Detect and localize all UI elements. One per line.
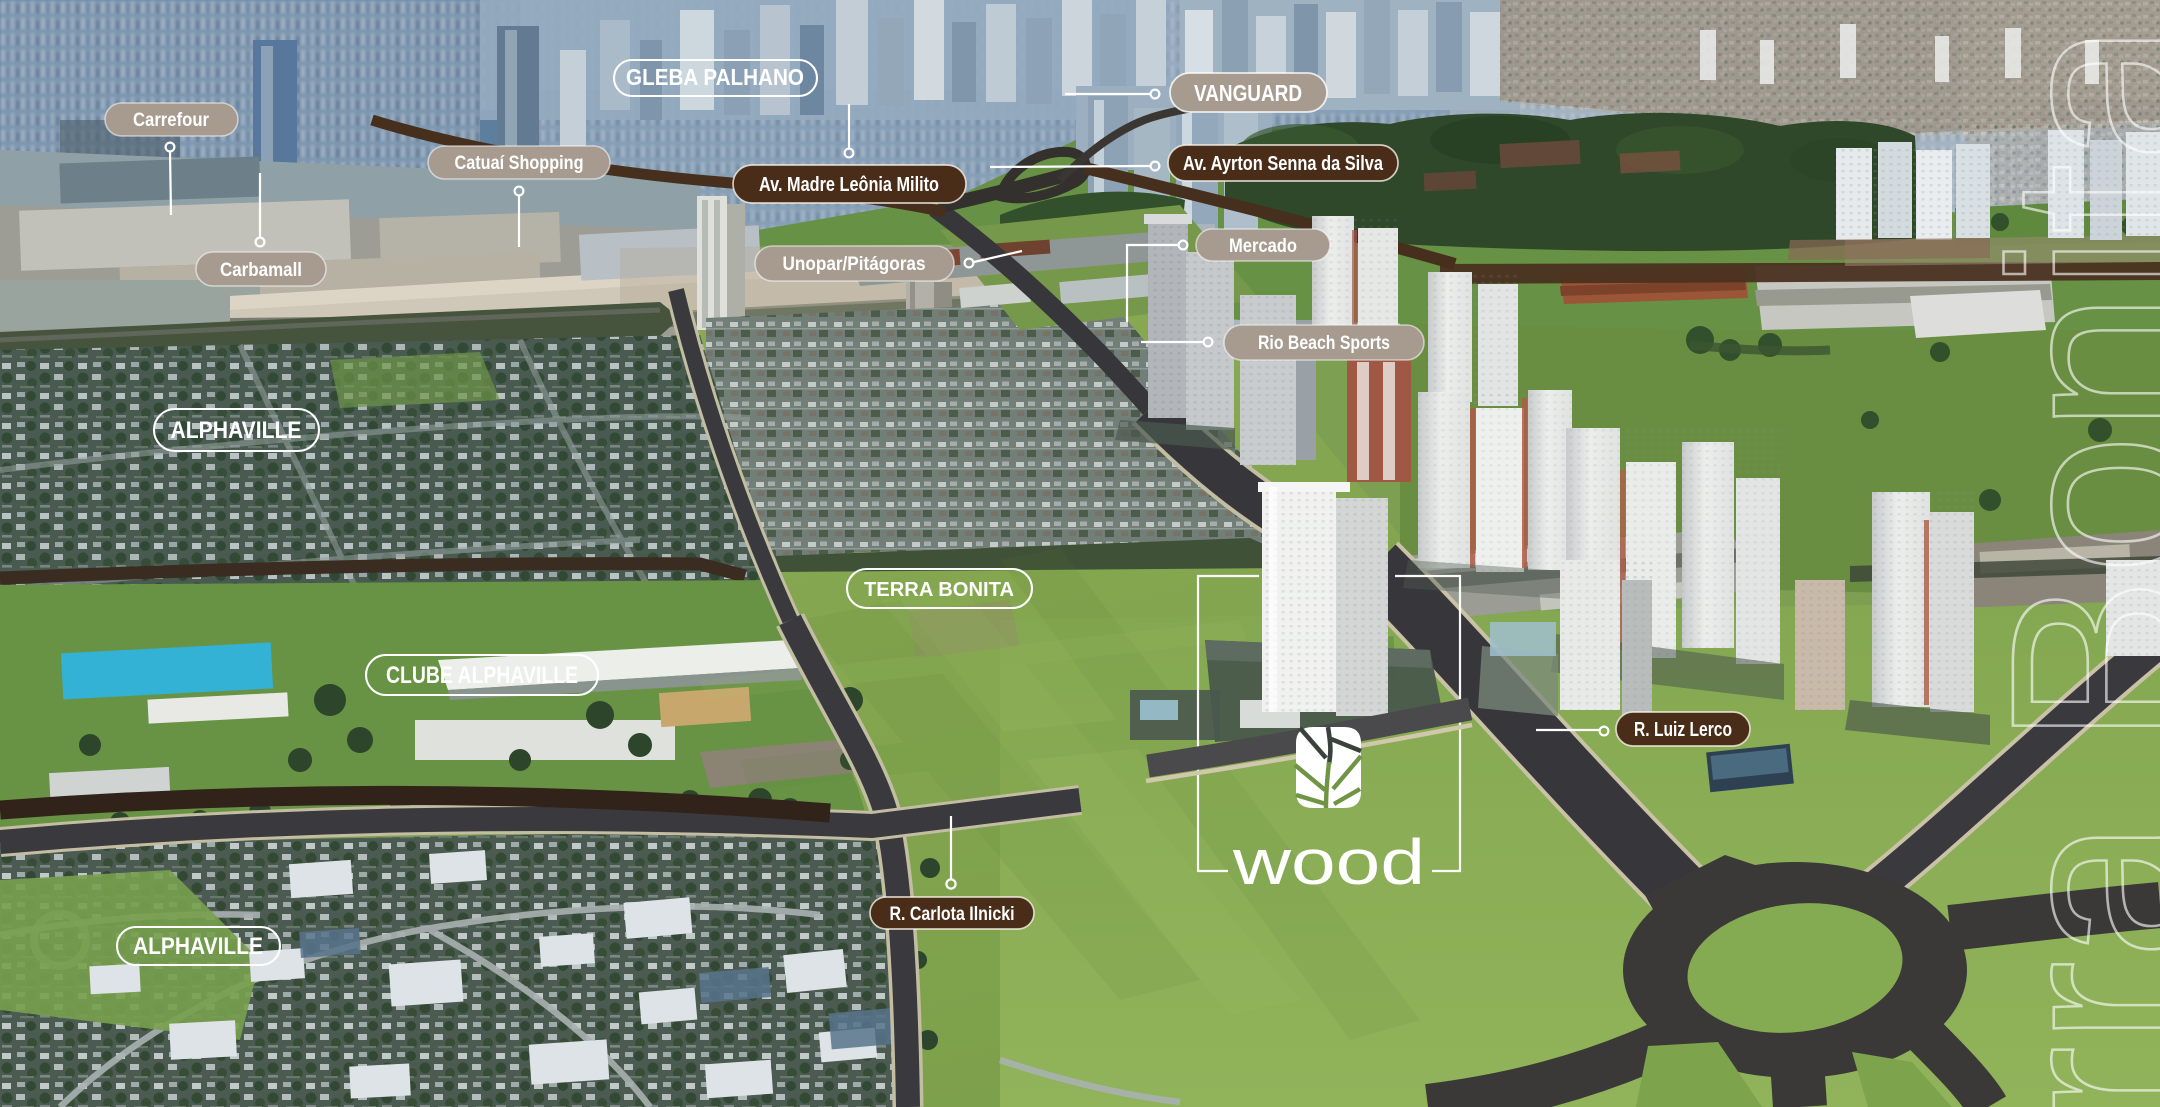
svg-text:R. Luiz Lerco: R. Luiz Lerco: [1634, 719, 1732, 741]
svg-text:wood: wood: [1232, 826, 1425, 898]
svg-text:Carbamall: Carbamall: [220, 260, 302, 281]
svg-text:GLEBA PALHANO: GLEBA PALHANO: [626, 64, 804, 90]
svg-text:ALPHAVILLE: ALPHAVILLE: [171, 417, 302, 444]
svg-text:ALPHAVILLE: ALPHAVILLE: [133, 933, 263, 960]
svg-text:Av. Madre Leônia Milito: Av. Madre Leônia Milito: [759, 174, 939, 196]
svg-text:R. Carlota Ilnicki: R. Carlota Ilnicki: [890, 903, 1015, 925]
svg-text:Catuaí Shopping: Catuaí Shopping: [455, 153, 584, 174]
svg-text:Rio Beach Sports: Rio Beach Sports: [1258, 332, 1390, 354]
svg-text:Terra Bonita: Terra Bonita: [1958, 20, 2160, 1107]
svg-text:Unopar/Pitágoras: Unopar/Pitágoras: [783, 254, 926, 275]
svg-text:VANGUARD: VANGUARD: [1194, 80, 1302, 106]
svg-text:TERRA BONITA: TERRA BONITA: [864, 578, 1014, 601]
svg-text:Mercado: Mercado: [1229, 236, 1297, 257]
svg-text:Av. Ayrton Senna da Silva: Av. Ayrton Senna da Silva: [1183, 153, 1384, 175]
svg-text:CLUBE ALPHAVILLE: CLUBE ALPHAVILLE: [386, 662, 578, 689]
svg-text:Carrefour: Carrefour: [133, 110, 210, 131]
